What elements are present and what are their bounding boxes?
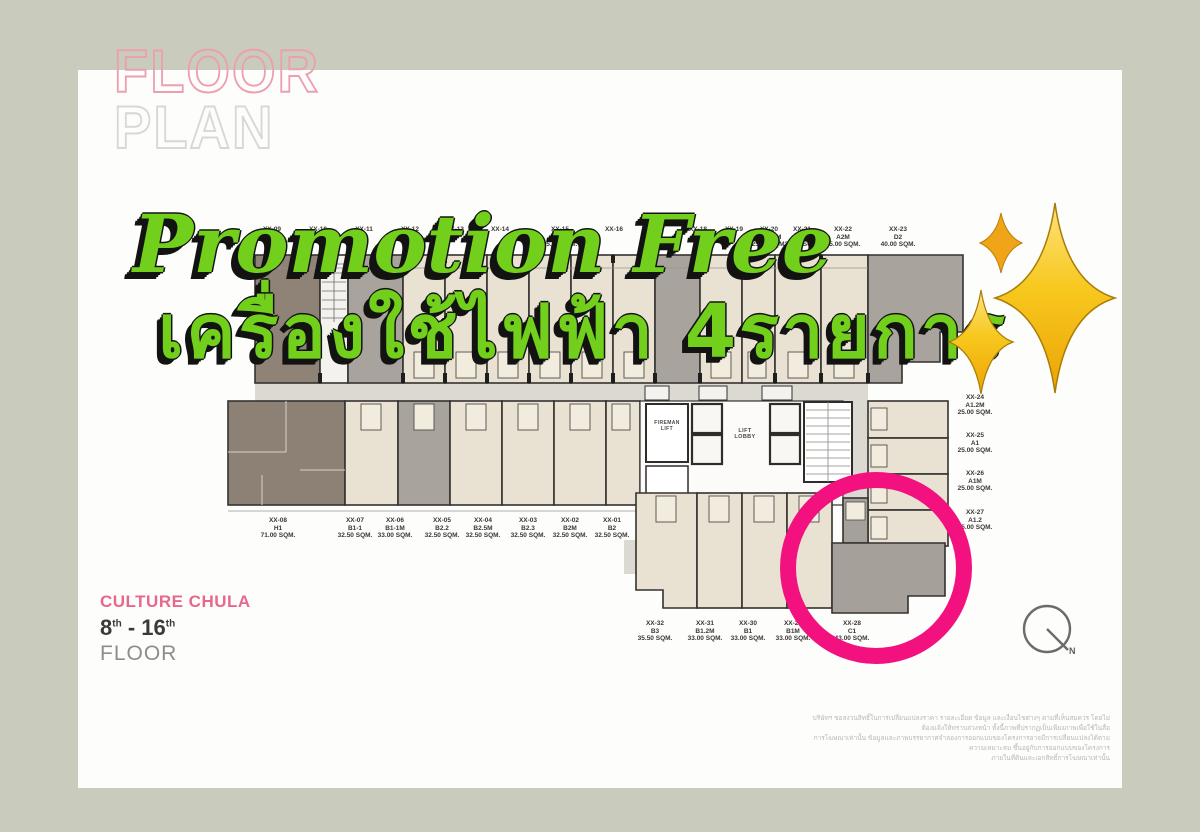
- compass-north-label: N: [1069, 646, 1076, 656]
- floor-to: - 16: [122, 615, 166, 640]
- fireman-lift-label: FIREMAN LIFT: [649, 420, 685, 432]
- unit-label-xx-30: XX-30B133.00 SQM.: [731, 620, 766, 643]
- unit-sqm: 35.50 SQM.: [638, 635, 673, 643]
- lift-lobby-label: LIFT LOBBY: [730, 428, 760, 440]
- unit-label-xx-32: XX-32B335.50 SQM.: [638, 620, 673, 643]
- floor-from: 8: [100, 615, 112, 640]
- unit-code: XX-32: [638, 620, 673, 628]
- unit-label-xx-28: XX-28C143.00 SQM.: [835, 620, 870, 643]
- promo-image: { "page": { "border_color": "#c9cbbc", "…: [0, 0, 1200, 832]
- project-name: CULTURE CHULA: [100, 592, 251, 612]
- unit-code: XX-29: [776, 620, 811, 628]
- unit-type: B1.2M: [688, 628, 723, 636]
- unit-code: XX-31: [688, 620, 723, 628]
- floor-from-sup: th: [112, 619, 121, 630]
- unit-label-xx-31: XX-31B1.2M33.00 SQM.: [688, 620, 723, 643]
- unit-type: C1: [835, 628, 870, 636]
- promo-line1: Promotion Free: [133, 196, 833, 292]
- promo-line2: เครื่องใช้ไฟฟ้า 4รายการ: [158, 282, 1008, 382]
- unit-sqm: 43.00 SQM.: [835, 635, 870, 643]
- disclaimer-line1: บริษัทฯ ขอสงวนสิทธิ์ในการเปลี่ยนแปลงราคา…: [805, 714, 1110, 734]
- unit-type: B1: [731, 628, 766, 636]
- unit-sqm: 33.00 SQM.: [688, 635, 723, 643]
- unit-label-xx-29: XX-29B1M33.00 SQM.: [776, 620, 811, 643]
- unit-sqm: 33.00 SQM.: [731, 635, 766, 643]
- floor-range: 8th - 16th: [100, 615, 251, 641]
- disclaimer-line2: การโฆษณาเท่านั้น ข้อมูลและภาพบรรยากาศจำล…: [805, 734, 1110, 754]
- floor-to-sup: th: [166, 619, 175, 630]
- disclaimer-text: บริษัทฯ ขอสงวนสิทธิ์ในการเปลี่ยนแปลงราคา…: [805, 714, 1110, 764]
- bottom-right-labels: XX-32B335.50 SQM.XX-31B1.2M33.00 SQM.XX-…: [0, 0, 1200, 832]
- disclaimer-line3: ภายในที่ดินและเอกสิทธิ์การโฆษณาเท่านั้น: [805, 754, 1110, 764]
- unit-code: XX-28: [835, 620, 870, 628]
- unit-type: B3: [638, 628, 673, 636]
- unit-code: XX-30: [731, 620, 766, 628]
- floor-word-label: FLOOR: [100, 642, 251, 666]
- project-brand: CULTURE CHULA 8th - 16th FLOOR: [100, 592, 251, 666]
- unit-type: B1M: [776, 628, 811, 636]
- unit-sqm: 33.00 SQM.: [776, 635, 811, 643]
